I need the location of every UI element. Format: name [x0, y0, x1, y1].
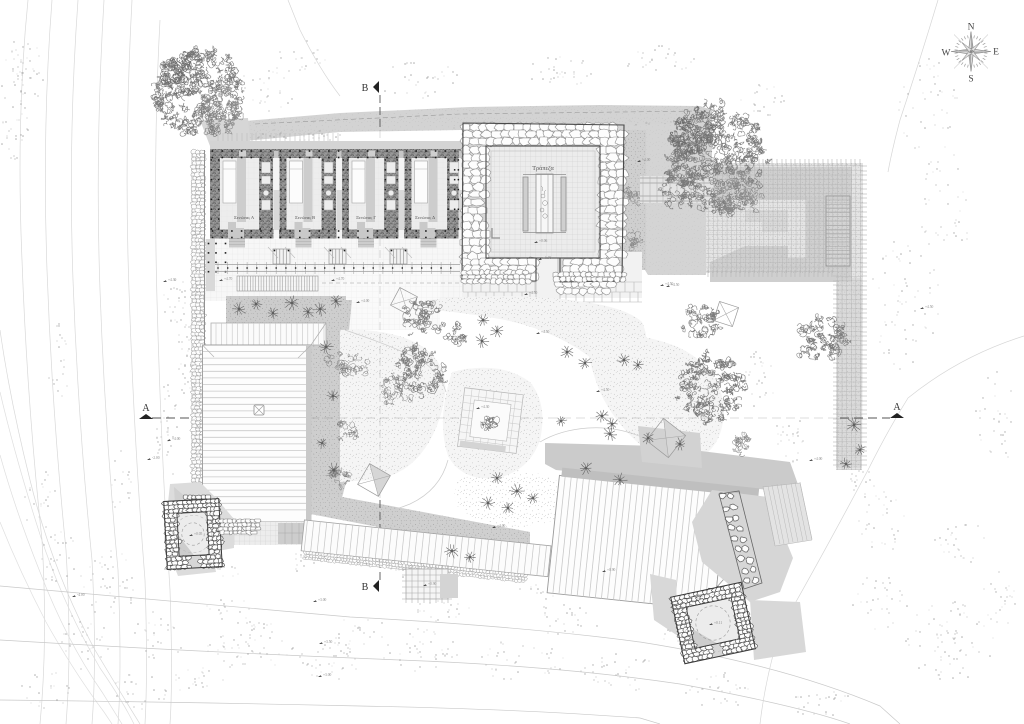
svg-text:S: S [968, 75, 973, 85]
svg-text:+4.50: +4.50 [541, 330, 550, 334]
svg-text:+0.11: +0.11 [714, 621, 722, 625]
svg-text:Ξενώνας Δ: Ξενώνας Δ [415, 215, 435, 220]
svg-text:+0.06: +0.06 [539, 239, 548, 243]
svg-text:+4.00: +4.00 [361, 299, 370, 303]
svg-text:Ξενώνας Γ: Ξενώνας Γ [356, 215, 376, 220]
svg-text:+3.00: +3.00 [318, 598, 327, 602]
svg-text:+4.50: +4.50 [665, 282, 674, 286]
svg-text:A: A [893, 402, 901, 413]
svg-text:+0.05: +0.05 [194, 532, 203, 536]
svg-text:+1.06: +1.06 [543, 256, 552, 260]
svg-text:N: N [968, 23, 975, 33]
svg-text:+4.70: +4.70 [224, 277, 233, 281]
svg-text:+0.90: +0.90 [428, 582, 437, 586]
svg-text:Τράπεζα: Τράπεζα [532, 165, 554, 172]
svg-text:+4.50: +4.50 [925, 305, 934, 309]
svg-text:+4.50: +4.50 [529, 291, 538, 295]
svg-text:+3.50: +3.50 [324, 640, 333, 644]
svg-text:+0.90: +0.90 [607, 568, 616, 572]
svg-text:-4.00: -4.00 [77, 593, 85, 597]
svg-text:Ξενώνας Β: Ξενώνας Β [295, 215, 316, 220]
svg-text:+4.00: +4.00 [172, 437, 181, 441]
svg-text:+4.30: +4.30 [481, 405, 490, 409]
svg-text:+4.50: +4.50 [601, 388, 610, 392]
svg-text:+3.00: +3.00 [323, 673, 332, 677]
svg-text:Ξενώνας Α: Ξενώνας Α [234, 215, 255, 220]
svg-text:+4.00: +4.00 [642, 158, 651, 162]
svg-text:E: E [993, 48, 999, 58]
svg-text:B: B [362, 582, 369, 593]
svg-text:+4.00: +4.00 [497, 524, 506, 528]
svg-text:+4.70: +4.70 [336, 277, 345, 281]
svg-text:-2.00: -2.00 [152, 456, 160, 460]
svg-text:+4.30: +4.30 [168, 278, 177, 282]
svg-text:W: W [942, 49, 951, 59]
svg-text:+4.00: +4.00 [814, 457, 823, 461]
svg-text:B: B [362, 83, 369, 94]
svg-text:A: A [142, 403, 150, 414]
